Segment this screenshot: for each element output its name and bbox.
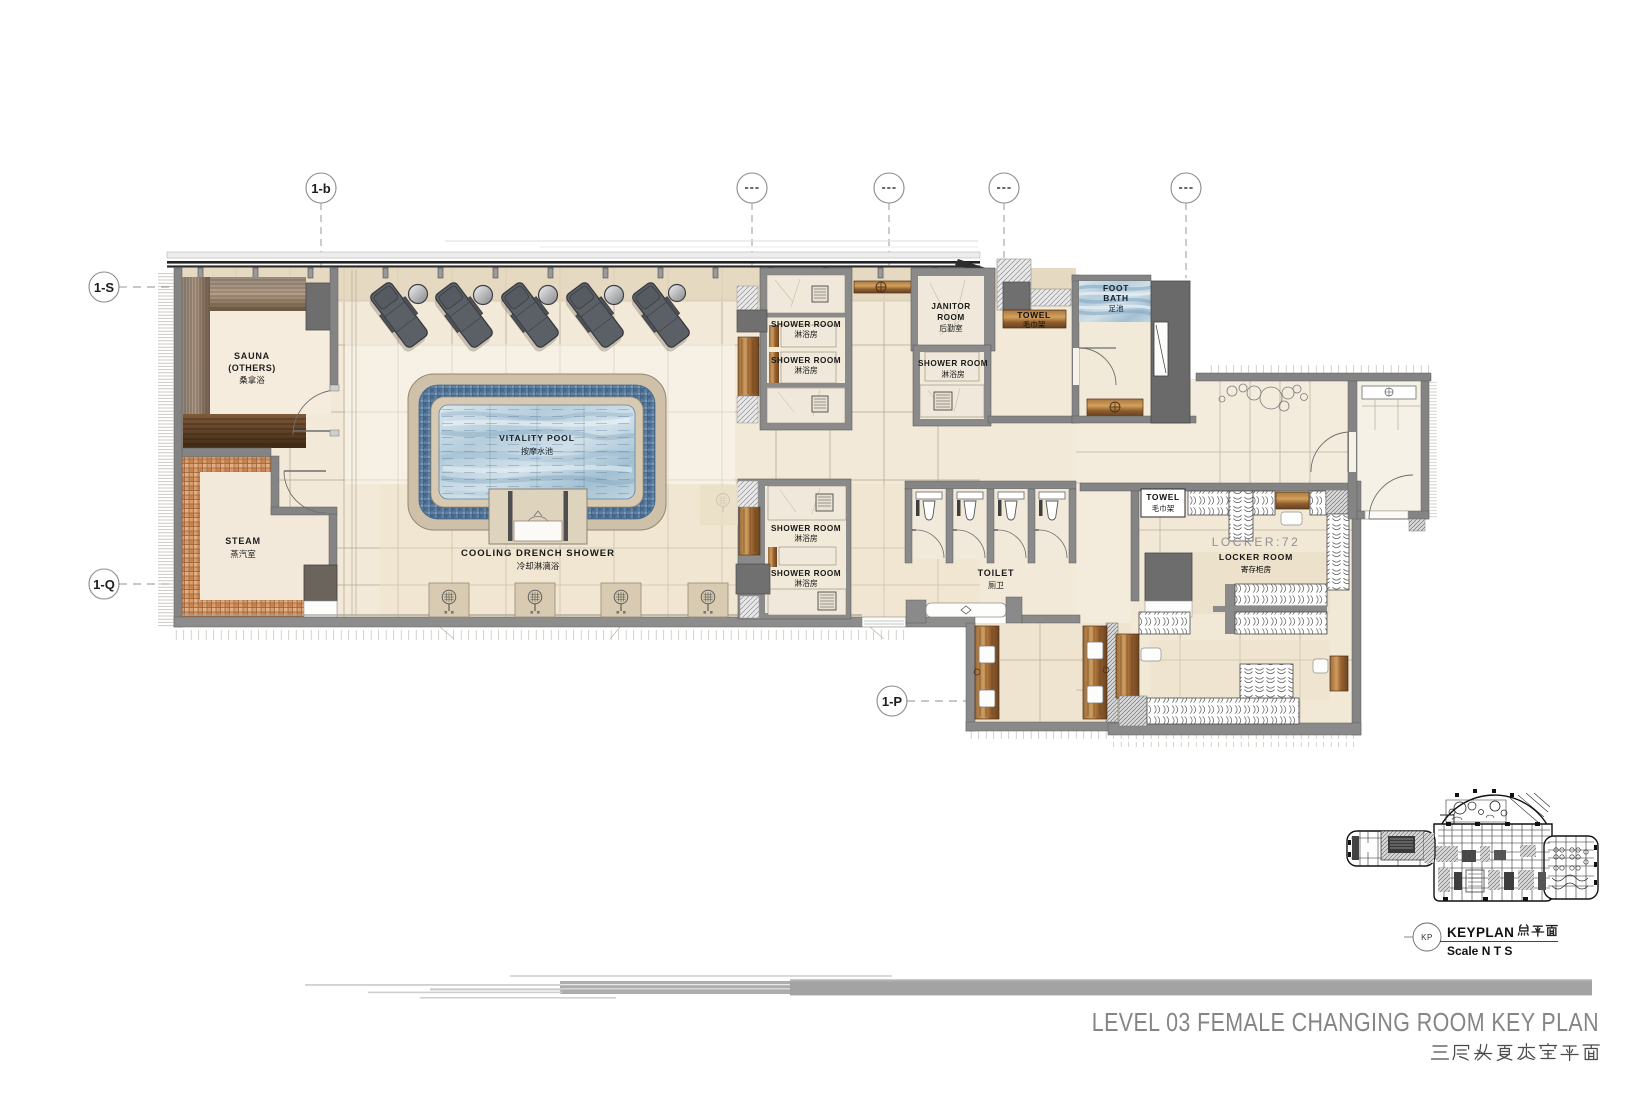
svg-text:SHOWER ROOM: SHOWER ROOM	[771, 569, 841, 578]
svg-text:厕卫: 厕卫	[988, 581, 1004, 590]
svg-text:STEAM: STEAM	[225, 536, 261, 546]
svg-text:KP: KP	[1421, 933, 1433, 942]
svg-text:SHOWER ROOM: SHOWER ROOM	[918, 359, 988, 368]
svg-text:COOLING DRENCH SHOWER: COOLING DRENCH SHOWER	[461, 548, 615, 559]
svg-text:TOWEL: TOWEL	[1017, 310, 1051, 320]
svg-text:Scale N T S: Scale N T S	[1447, 944, 1512, 958]
svg-text:毛巾架: 毛巾架	[1023, 319, 1046, 329]
svg-text:LOCKER:72: LOCKER:72	[1212, 535, 1301, 549]
svg-text:(OTHERS): (OTHERS)	[228, 363, 276, 373]
svg-text:VITALITY POOL: VITALITY POOL	[499, 433, 575, 443]
svg-text:FOOT: FOOT	[1103, 283, 1129, 293]
svg-text:TOWEL: TOWEL	[1146, 492, 1180, 502]
svg-text:桑拿浴: 桑拿浴	[239, 375, 265, 385]
svg-text:蒸汽室: 蒸汽室	[230, 549, 256, 559]
svg-text:KEYPLAN: KEYPLAN	[1447, 925, 1514, 940]
svg-text:按摩水池: 按摩水池	[521, 446, 553, 456]
svg-text:寄存柜房: 寄存柜房	[1241, 564, 1271, 574]
svg-text:毛巾架: 毛巾架	[1152, 503, 1175, 513]
svg-text:TOILET: TOILET	[978, 568, 1015, 578]
svg-text:BATH: BATH	[1103, 293, 1128, 303]
svg-text:LOCKER ROOM: LOCKER ROOM	[1219, 552, 1293, 562]
svg-text:SHOWER ROOM: SHOWER ROOM	[771, 320, 841, 329]
svg-text:1-Q: 1-Q	[93, 577, 115, 592]
svg-text:足池: 足池	[1108, 303, 1124, 313]
svg-text:LEVEL 03 FEMALE CHANGING ROOM: LEVEL 03 FEMALE CHANGING ROOM KEY PLAN	[1092, 1008, 1599, 1036]
svg-text:1-S: 1-S	[94, 280, 115, 295]
svg-text:SHOWER ROOM: SHOWER ROOM	[771, 356, 841, 365]
svg-text:淋浴房: 淋浴房	[794, 329, 818, 339]
svg-text:JANITOR: JANITOR	[931, 302, 970, 311]
svg-text:淋浴房: 淋浴房	[941, 369, 965, 379]
svg-text:SHOWER ROOM: SHOWER ROOM	[771, 524, 841, 533]
svg-text:淋浴房: 淋浴房	[794, 365, 818, 375]
svg-text:1-P: 1-P	[882, 694, 903, 709]
svg-text:后勤室: 后勤室	[939, 323, 963, 333]
svg-text:淋浴房: 淋浴房	[794, 578, 818, 588]
svg-text:淋浴房: 淋浴房	[794, 533, 818, 543]
svg-text:SAUNA: SAUNA	[234, 351, 270, 361]
svg-text:冷却淋漓浴: 冷却淋漓浴	[517, 561, 560, 571]
svg-text:ROOM: ROOM	[937, 313, 964, 322]
svg-text:1-b: 1-b	[311, 181, 331, 196]
